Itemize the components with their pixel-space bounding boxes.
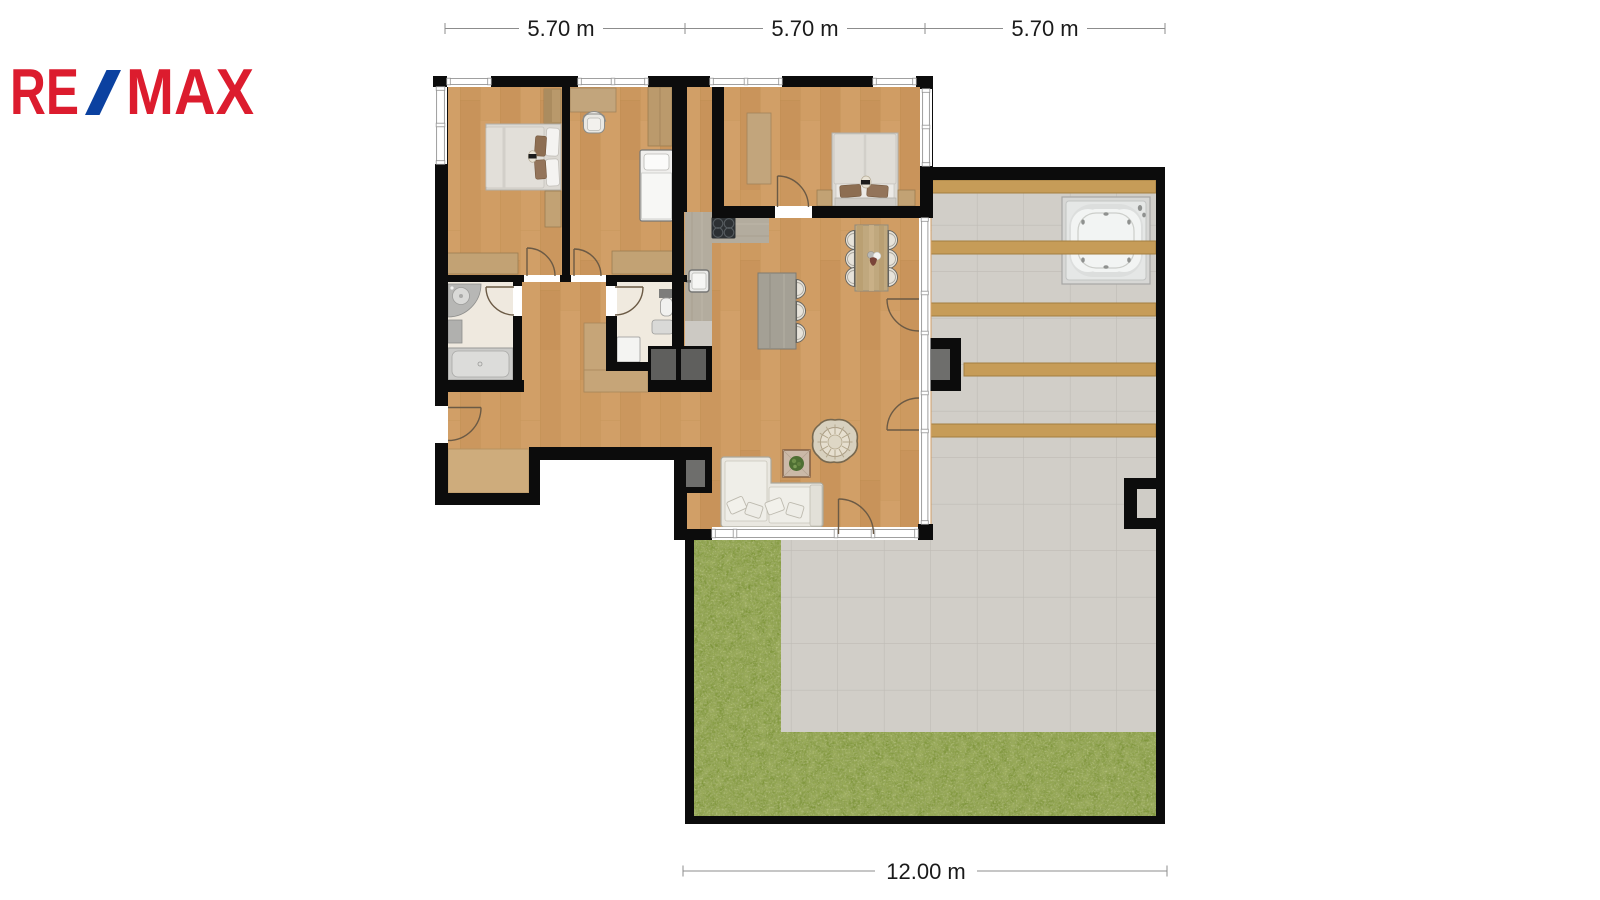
svg-text:RE: RE — [10, 55, 79, 128]
svg-text:MAX: MAX — [126, 55, 254, 128]
svg-text:12.00 m: 12.00 m — [886, 859, 966, 884]
svg-text:5.70 m: 5.70 m — [527, 16, 594, 41]
svg-text:5.70 m: 5.70 m — [1011, 16, 1078, 41]
svg-text:5.70 m: 5.70 m — [771, 16, 838, 41]
